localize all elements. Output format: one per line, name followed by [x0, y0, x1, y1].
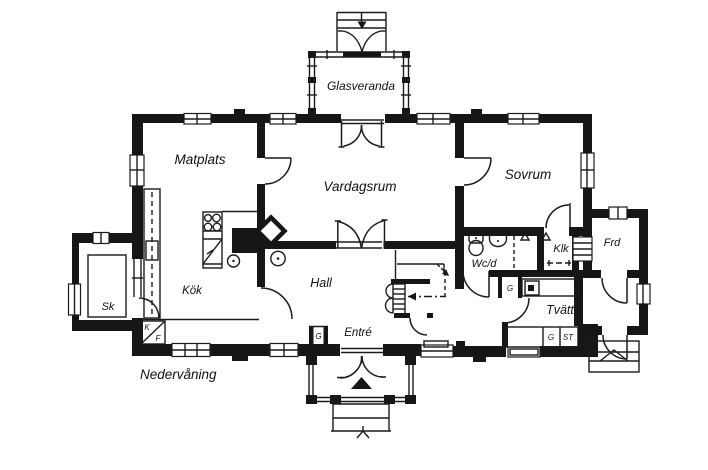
svg-text:Matplats: Matplats — [174, 152, 225, 167]
svg-text:Tvätt: Tvätt — [546, 303, 574, 317]
svg-text:Klk: Klk — [553, 243, 569, 255]
svg-text:Kök: Kök — [182, 285, 203, 297]
svg-text:Nedervåning: Nedervåning — [140, 367, 217, 382]
svg-text:G: G — [548, 333, 554, 342]
svg-text:G: G — [315, 332, 321, 341]
svg-text:Frd: Frd — [604, 237, 621, 249]
svg-text:Hall: Hall — [310, 276, 333, 290]
svg-text:Glasveranda: Glasveranda — [327, 79, 395, 93]
svg-text:Wc/d: Wc/d — [471, 258, 497, 270]
svg-text:Vardagsrum: Vardagsrum — [323, 179, 396, 194]
svg-text:ST: ST — [563, 333, 574, 342]
svg-text:K: K — [144, 323, 150, 332]
svg-text:G: G — [507, 284, 513, 293]
svg-text:Sk: Sk — [102, 301, 115, 313]
svg-text:Sovrum: Sovrum — [505, 167, 552, 182]
svg-text:Entré: Entré — [344, 327, 372, 339]
